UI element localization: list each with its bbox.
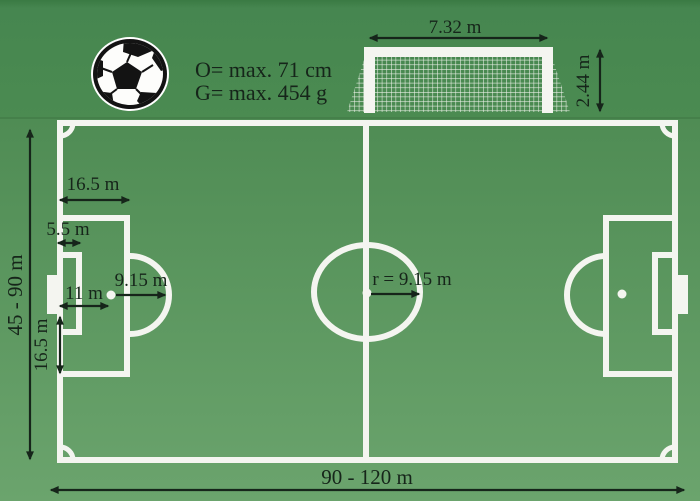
- penalty-area-extent-label: 16.5 m: [31, 318, 52, 371]
- penalty-area-depth-label: 16.5 m: [67, 174, 120, 195]
- penalty-spot-right: [618, 290, 627, 299]
- goal-mouth-left: [47, 275, 63, 314]
- goal-height-label: 2.44 m: [573, 54, 594, 107]
- goal-width-label: 7.32 m: [429, 17, 482, 38]
- goal-mouth-right: [672, 275, 688, 314]
- penalty-spot-left: [107, 291, 116, 300]
- goal-right-post: [542, 47, 553, 113]
- center-circle-radius-label: r = 9.15 m: [372, 269, 452, 290]
- goal-crossbar: [364, 47, 553, 57]
- center-spot: [363, 289, 372, 298]
- penalty-spot-distance-label: 11 m: [65, 283, 103, 304]
- penalty-arc-radius-label: 9.15 m: [115, 270, 168, 291]
- pitch-length-label: 90 - 120 m: [321, 465, 413, 489]
- goal-left-post: [364, 47, 375, 113]
- goal-net: [375, 57, 542, 112]
- ball-circumference-label: O= max. 71 cm: [195, 57, 332, 82]
- background-seam: [0, 117, 700, 119]
- pitch-width-label: 45 - 90 m: [3, 254, 27, 335]
- ball-weight-label: G= max. 454 g: [195, 80, 327, 105]
- football-pitch-diagram: 7.32 m 2.44 m O= max. 71 cm G= max. 454 …: [0, 0, 700, 501]
- goal-area-depth-label: 5.5 m: [46, 219, 90, 240]
